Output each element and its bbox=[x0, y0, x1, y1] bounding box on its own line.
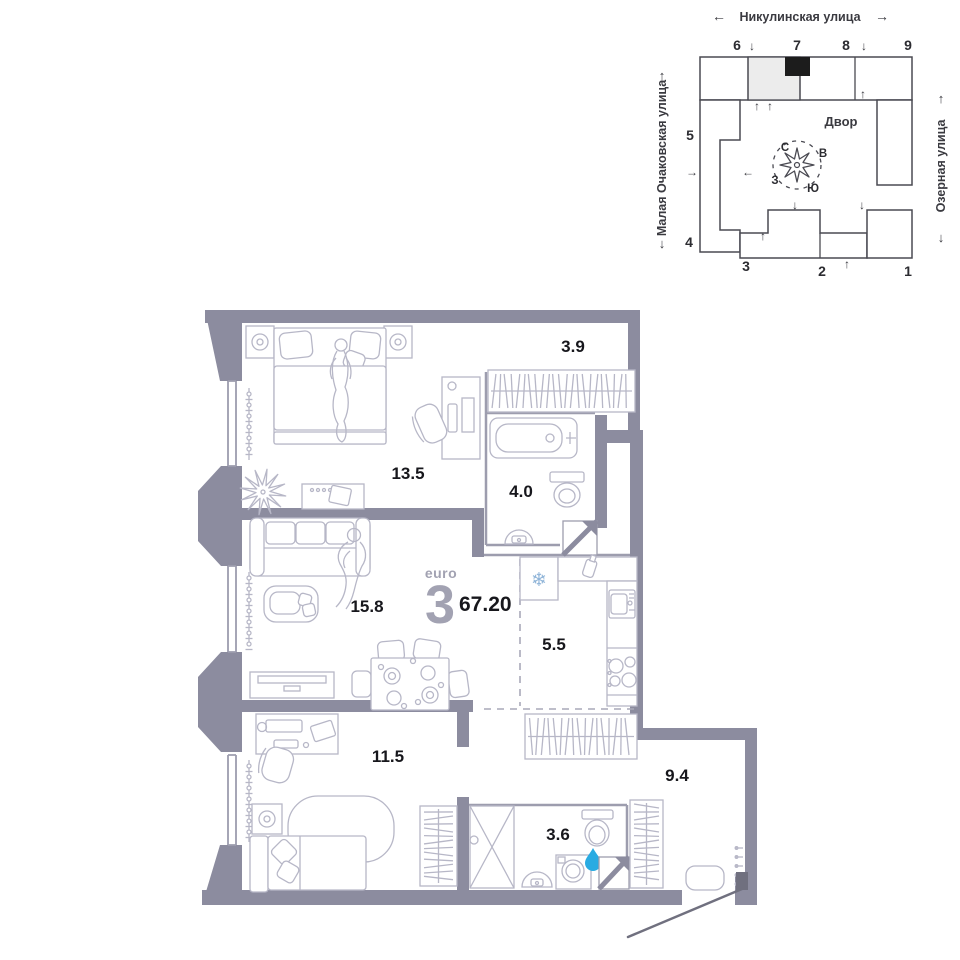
plant bbox=[240, 469, 285, 514]
area-kitchen: 5.5 bbox=[542, 635, 566, 654]
bedroom2-furniture bbox=[250, 714, 457, 892]
toilet-tank bbox=[582, 810, 613, 819]
street-arrow-up-icon: ↑ bbox=[938, 91, 945, 106]
nightstand bbox=[246, 326, 274, 358]
bathroom2-fixtures bbox=[470, 806, 629, 889]
courtyard-label: Двор bbox=[825, 114, 858, 129]
pouf bbox=[686, 866, 724, 890]
wardrobe-rack-hall-top bbox=[525, 714, 637, 759]
bathroom-top-fixtures bbox=[490, 418, 597, 555]
entrance-arrow-icon: ↑ bbox=[760, 229, 766, 243]
building-number-2: 2 bbox=[818, 263, 826, 279]
entrance-arrow-icon: ↓ bbox=[859, 198, 865, 212]
windows bbox=[228, 381, 236, 845]
entrance-arrow-icon: ← bbox=[742, 165, 754, 179]
street-top-label: Никулинская улица bbox=[739, 10, 861, 24]
wardrobe-rack-hall-right bbox=[630, 800, 663, 888]
compass-west-label: З bbox=[771, 175, 778, 187]
entrance-arrow-icon: ↑ bbox=[767, 99, 773, 113]
floor-plan-svg: ← Никулинская улица → 6 7 8 9 5 4 3 2 1 bbox=[0, 0, 960, 960]
toilet-tank bbox=[550, 472, 584, 482]
entrance-arrow-icon: ↑ bbox=[844, 257, 850, 271]
wardrobe-rack-bedroom2 bbox=[420, 806, 457, 886]
door-swing bbox=[563, 521, 597, 555]
door-swing bbox=[599, 857, 629, 889]
location-marker bbox=[785, 57, 810, 76]
entrance-arrow-icon: ↑ bbox=[860, 87, 866, 101]
blanket bbox=[274, 366, 386, 430]
compass-east-label: В bbox=[819, 148, 827, 160]
wardrobe-rack-top bbox=[488, 370, 635, 412]
sofa bbox=[250, 518, 370, 576]
entrance-arrow-icon: ↑ bbox=[754, 99, 760, 113]
entrance-door-leaf bbox=[736, 872, 748, 890]
nightstand bbox=[252, 804, 282, 834]
entrance-arrow-icon: ↓ bbox=[861, 39, 867, 53]
radiators bbox=[246, 388, 253, 842]
compass-north-label: С bbox=[781, 142, 789, 154]
site-plan: ← Никулинская улица → 6 7 8 9 5 4 3 2 1 bbox=[655, 8, 948, 279]
bed-footboard bbox=[274, 432, 386, 444]
bed-headboard bbox=[250, 836, 268, 892]
dresser-item bbox=[329, 485, 352, 506]
building-number-5: 5 bbox=[686, 127, 694, 143]
keyboard bbox=[448, 404, 457, 432]
bedroom-furniture bbox=[240, 326, 480, 515]
nightstand bbox=[384, 326, 412, 358]
building-number-9: 9 bbox=[904, 37, 912, 53]
compass-icon: С В З Ю bbox=[771, 141, 827, 195]
chair bbox=[447, 670, 469, 698]
floor-plan: ❄ bbox=[198, 310, 757, 937]
street-arrow-right-icon: → bbox=[875, 8, 889, 24]
area-bedroom: 13.5 bbox=[391, 464, 424, 483]
tv bbox=[258, 676, 326, 683]
fridge-snowflake-icon: ❄ bbox=[531, 570, 547, 591]
dining-set bbox=[352, 638, 470, 710]
building-number-1: 1 bbox=[904, 263, 912, 279]
building-number-8: 8 bbox=[842, 37, 850, 53]
monitor bbox=[462, 398, 474, 432]
apartment-label: euro 3 67.20 bbox=[425, 565, 512, 635]
building-number-6: 6 bbox=[733, 37, 741, 53]
area-bathroom-2: 3.6 bbox=[546, 825, 570, 844]
apartment-rooms-count: 3 bbox=[425, 575, 455, 635]
kitchen-counter-top bbox=[558, 557, 637, 581]
apartment-total-area: 67.20 bbox=[459, 593, 512, 616]
kitchen-fixtures: ❄ bbox=[520, 554, 637, 706]
chair bbox=[352, 671, 371, 697]
entrance-arrow-icon: → bbox=[686, 165, 698, 179]
building-number-4: 4 bbox=[685, 234, 693, 250]
monitor bbox=[266, 720, 302, 732]
street-right: ↑ Озерная улица ↓ bbox=[934, 91, 948, 245]
area-bedroom-2: 11.5 bbox=[372, 747, 404, 766]
area-wardrobe: 3.9 bbox=[561, 337, 585, 356]
area-bathroom: 4.0 bbox=[509, 482, 533, 501]
floorplan-page: ← Никулинская улица → 6 7 8 9 5 4 3 2 1 bbox=[0, 0, 960, 960]
street-right-label: Озерная улица bbox=[934, 119, 948, 213]
street-left-label: Малая Очаковская улица bbox=[655, 79, 669, 236]
street-arrow-down-icon: ↓ bbox=[659, 236, 666, 251]
area-living-room: 15.8 bbox=[350, 597, 383, 616]
street-arrow-left-icon: ← bbox=[712, 8, 726, 24]
area-hallway: 9.4 bbox=[665, 766, 689, 785]
entrance-arrow-icon: ↓ bbox=[792, 198, 798, 212]
building-number-3: 3 bbox=[742, 258, 750, 274]
building-number-7: 7 bbox=[793, 37, 801, 53]
entrance-arrow-icon: ↓ bbox=[749, 39, 755, 53]
street-left: ↑ Малая Очаковская улица ↓ bbox=[655, 68, 669, 251]
street-arrow-down-icon: ↓ bbox=[938, 230, 945, 245]
pillow bbox=[279, 330, 314, 359]
compass-south-label: Ю bbox=[807, 183, 819, 195]
